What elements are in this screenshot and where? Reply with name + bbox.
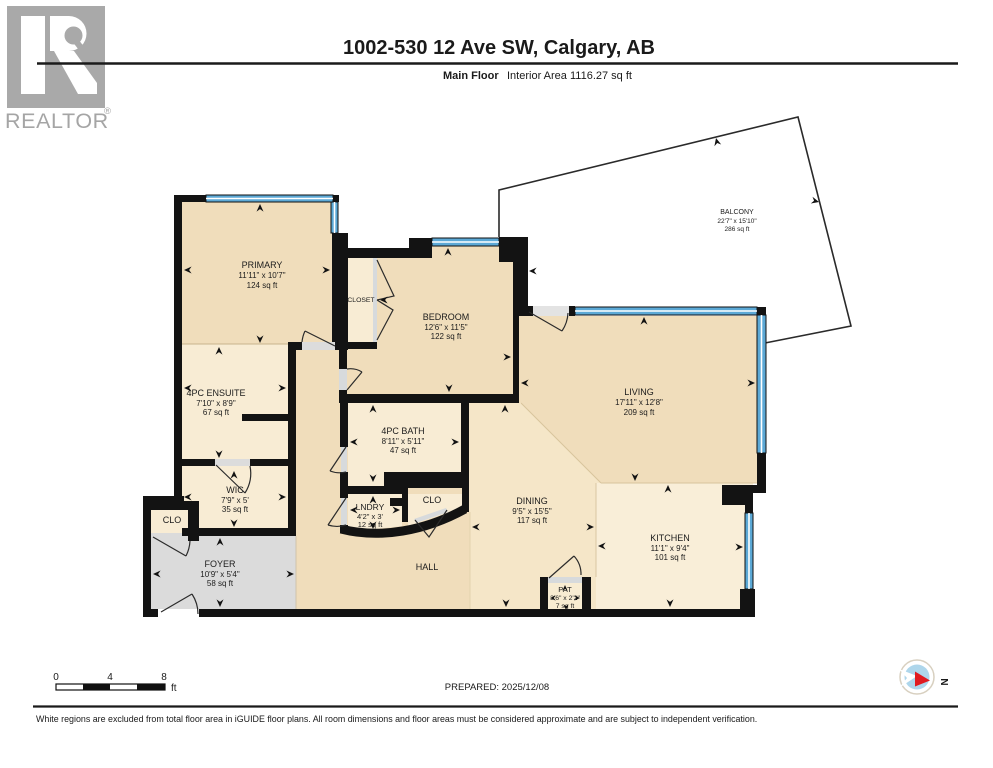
svg-text:4PC BATH: 4PC BATH [381, 426, 424, 436]
svg-text:117 sq ft: 117 sq ft [517, 516, 548, 525]
svg-text:67 sq ft: 67 sq ft [203, 408, 230, 417]
svg-text:0: 0 [53, 672, 59, 683]
svg-text:N: N [938, 678, 949, 685]
svg-text:Interior Area 1116.27 sq ft: Interior Area 1116.27 sq ft [507, 70, 632, 82]
svg-text:BEDROOM: BEDROOM [423, 312, 470, 322]
svg-text:7'9" x 5': 7'9" x 5' [221, 496, 249, 505]
svg-text:101 sq ft: 101 sq ft [655, 553, 686, 562]
svg-text:DINING: DINING [516, 496, 548, 506]
svg-text:4PC ENSUITE: 4PC ENSUITE [186, 388, 245, 398]
svg-text:286 sq ft: 286 sq ft [725, 226, 750, 233]
svg-text:8'11" x 5'11": 8'11" x 5'11" [382, 437, 425, 446]
svg-text:Main Floor: Main Floor [443, 70, 499, 82]
svg-text:4: 4 [107, 672, 113, 683]
svg-text:White regions are excluded fro: White regions are excluded from total fl… [36, 714, 757, 724]
svg-text:9'5" x 15'5": 9'5" x 15'5" [512, 507, 552, 516]
svg-text:8: 8 [161, 672, 167, 683]
svg-text:11'11" x 10'7": 11'11" x 10'7" [238, 271, 285, 280]
svg-text:47 sq ft: 47 sq ft [390, 446, 417, 455]
svg-text:12 sq ft: 12 sq ft [358, 520, 384, 529]
svg-text:®: ® [104, 106, 111, 117]
svg-text:122 sq ft: 122 sq ft [431, 332, 462, 341]
svg-text:10'9" x 5'4": 10'9" x 5'4" [200, 570, 240, 579]
svg-text:17'11" x 12'8": 17'11" x 12'8" [615, 398, 663, 407]
svg-text:ft: ft [171, 683, 177, 694]
svg-text:WIC: WIC [226, 485, 244, 495]
svg-text:7'10" x 8'9": 7'10" x 8'9" [196, 399, 236, 408]
svg-text:LIVING: LIVING [624, 387, 654, 397]
svg-text:PREPARED: 2025/12/08: PREPARED: 2025/12/08 [445, 682, 549, 693]
svg-text:11'1" x 9'4": 11'1" x 9'4" [651, 544, 690, 553]
svg-text:REALTOR: REALTOR [5, 109, 109, 133]
svg-text:CLO: CLO [423, 495, 442, 505]
svg-text:124 sq ft: 124 sq ft [247, 281, 278, 290]
svg-text:HALL: HALL [416, 562, 439, 572]
svg-text:209 sq ft: 209 sq ft [624, 408, 655, 417]
svg-text:CLOSET: CLOSET [347, 297, 374, 304]
svg-text:KITCHEN: KITCHEN [650, 533, 690, 543]
svg-text:PRIMARY: PRIMARY [242, 260, 283, 270]
svg-text:35 sq ft: 35 sq ft [222, 505, 249, 514]
svg-text:FOYER: FOYER [204, 559, 236, 569]
svg-text:58 sq ft: 58 sq ft [207, 579, 234, 588]
svg-text:1002-530 12 Ave SW, Calgary, A: 1002-530 12 Ave SW, Calgary, AB [343, 37, 655, 59]
svg-text:LNDRY: LNDRY [356, 502, 385, 512]
svg-text:CLO: CLO [163, 515, 182, 525]
svg-text:22'7" x 15'10": 22'7" x 15'10" [717, 218, 757, 225]
svg-text:BALCONY: BALCONY [720, 209, 754, 216]
svg-text:12'6" x 11'5": 12'6" x 11'5" [424, 323, 467, 332]
